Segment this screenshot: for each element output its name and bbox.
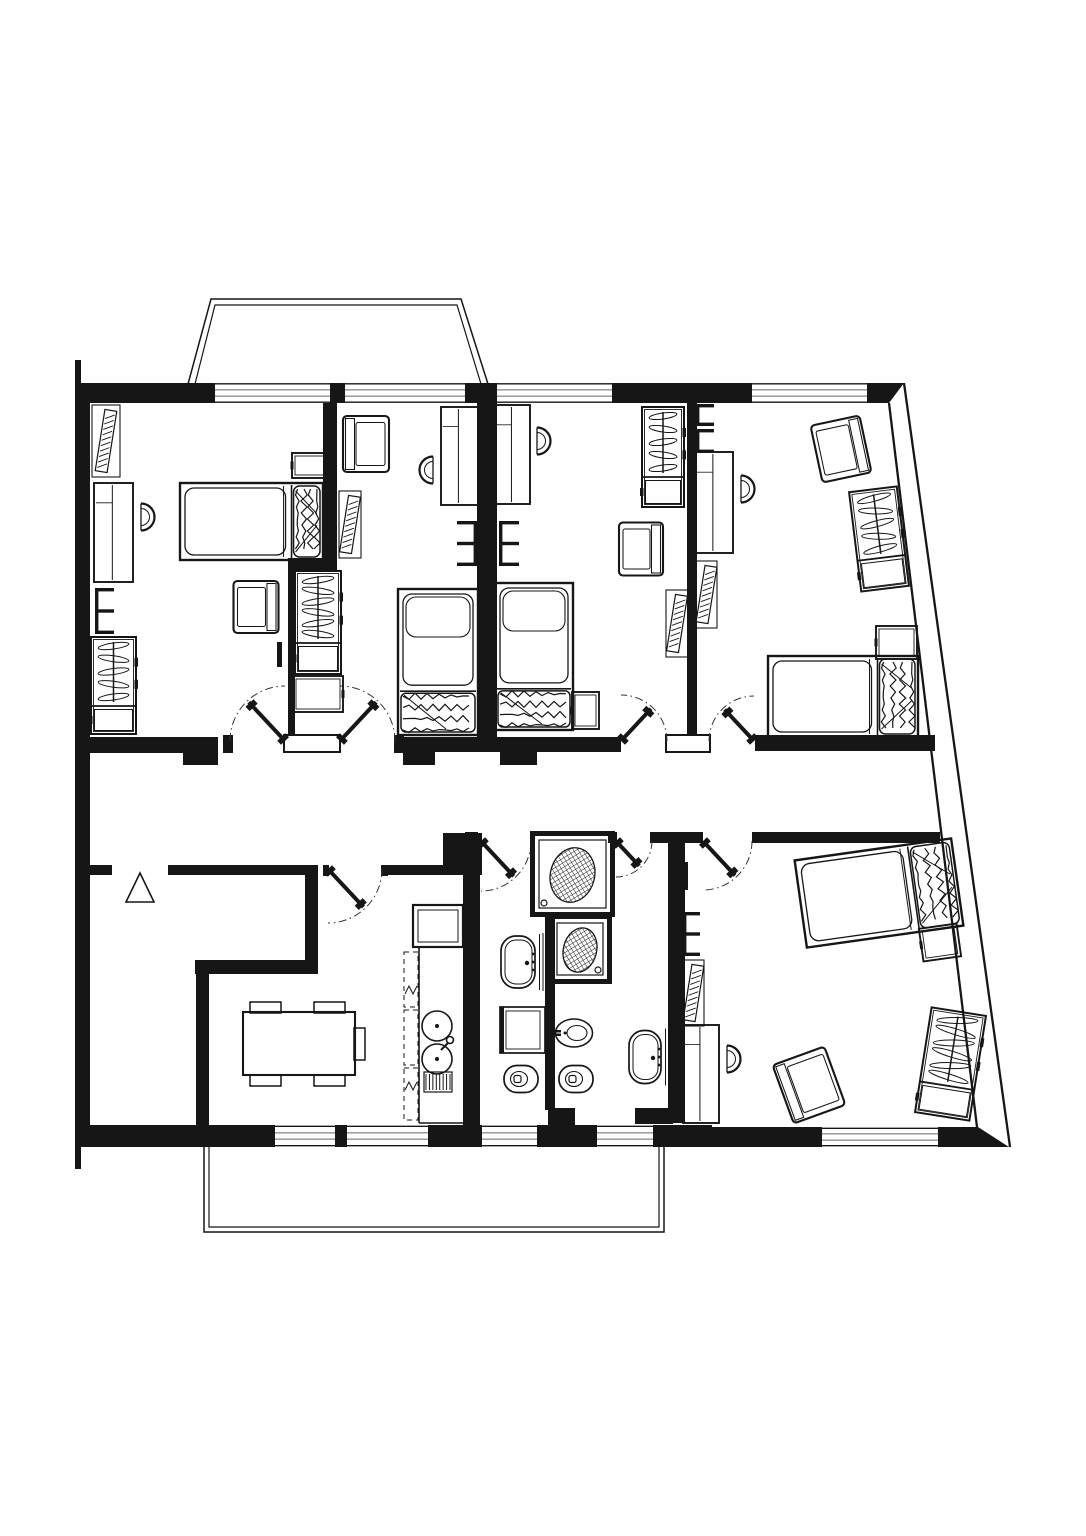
bedroom-4-wall-rail xyxy=(689,654,695,683)
floor-plan-page xyxy=(0,0,1086,1536)
window-8 xyxy=(597,1126,653,1147)
window-1 xyxy=(215,383,330,403)
bedroom-1-wall-rail xyxy=(277,642,282,667)
window-5 xyxy=(275,1126,335,1147)
kitchen-dining-sink-drain-2 xyxy=(435,1057,439,1061)
window-6 xyxy=(347,1126,428,1147)
window-3 xyxy=(497,383,612,403)
floor-plan-canvas xyxy=(0,0,1086,1536)
window-4 xyxy=(752,383,867,403)
window-2 xyxy=(345,383,465,403)
window-9 xyxy=(822,1128,938,1147)
bedroom-5-wall-rail xyxy=(683,862,688,890)
window-7 xyxy=(482,1126,537,1147)
kitchen-dining-sink-drain-1 xyxy=(435,1024,439,1028)
